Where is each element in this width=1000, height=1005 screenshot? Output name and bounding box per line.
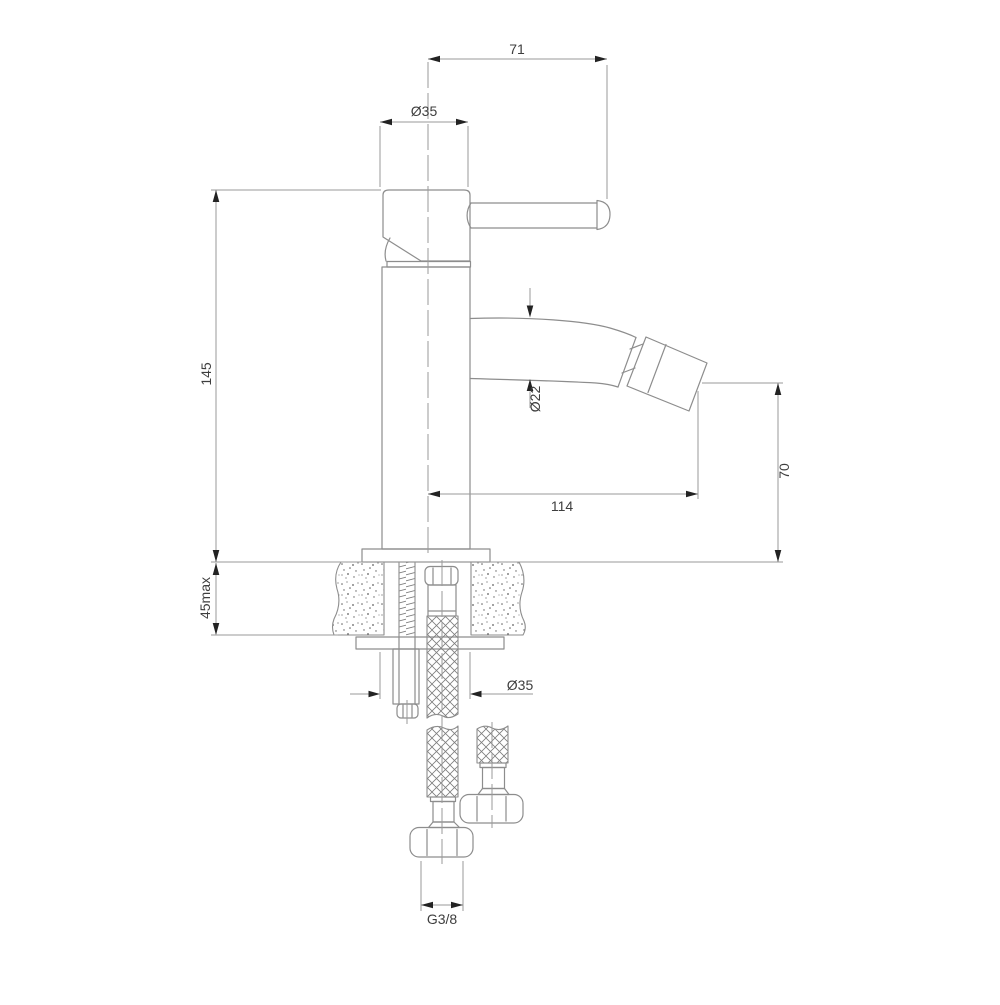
threaded-rod	[399, 562, 415, 637]
dim-deck-thickness-label: 45max	[197, 577, 213, 619]
spout-end-face	[618, 338, 636, 388]
hose-tube	[483, 768, 505, 789]
arrowhead	[775, 383, 782, 395]
dimension-head-diameter: Ø35	[380, 103, 468, 187]
spout	[470, 318, 707, 411]
head-collar-ring	[387, 262, 471, 268]
countertop-left-block	[333, 562, 385, 635]
dim-handle-span-label: 71	[509, 41, 525, 57]
arrowhead	[470, 691, 482, 698]
faucet-handle	[467, 201, 610, 230]
dim-shank-diameter-label: Ø35	[507, 677, 534, 693]
arrowhead	[456, 119, 468, 126]
hose-flare	[478, 789, 509, 795]
technical-drawing-page: 71 Ø35 145 45max Ø22 114	[0, 0, 1000, 1000]
rod-through-plate	[399, 637, 415, 649]
arrowhead	[775, 550, 782, 562]
handle-end-cap	[597, 201, 610, 230]
hose-tube	[433, 802, 454, 823]
arrowhead	[213, 550, 220, 562]
dimension-handle-span: 71	[428, 41, 607, 199]
arrowhead	[213, 563, 220, 575]
spout-top-edge	[470, 318, 636, 337]
aerator-outline	[627, 337, 707, 411]
extension-line	[380, 126, 468, 187]
hose-flare	[429, 822, 460, 828]
arrowhead	[527, 306, 534, 318]
arrowhead	[421, 902, 433, 909]
base-flange	[362, 549, 490, 562]
dim-connection-thread-label: G3/8	[427, 911, 458, 927]
hose-ferrule	[431, 797, 456, 802]
handle-lever	[467, 203, 597, 228]
arrowhead	[380, 119, 392, 126]
dim-body-height-label: 145	[198, 362, 214, 386]
faucet-head	[383, 190, 471, 267]
dim-outlet-height-label: 70	[776, 463, 792, 479]
faucet-technical-drawing: 71 Ø35 145 45max Ø22 114	[0, 0, 1000, 1000]
dimension-spout-diameter: Ø22	[527, 288, 543, 412]
arrowhead	[428, 56, 440, 63]
dimension-body-height: 145	[198, 190, 381, 562]
arrowhead	[686, 491, 698, 498]
arrowhead	[369, 691, 381, 698]
arrowhead	[428, 491, 440, 498]
faucet-body-column	[382, 267, 470, 549]
dimension-connection-thread: G3/8	[421, 861, 463, 927]
arrowhead	[213, 623, 220, 635]
spout-bottom-edge	[470, 379, 618, 388]
countertop-right-block	[471, 562, 525, 635]
arrowhead	[595, 56, 607, 63]
dimension-deck-thickness: 45max	[197, 563, 338, 635]
dimension-outlet-height: 70	[702, 383, 792, 562]
dimension-spout-reach: 114	[428, 391, 698, 514]
arrowhead	[451, 902, 463, 909]
hose-ferrule	[480, 763, 506, 768]
arrowhead	[213, 190, 220, 202]
aerator	[627, 337, 707, 411]
head-outline	[383, 190, 470, 261]
dim-spout-reach-label: 114	[551, 498, 574, 514]
dim-spout-diameter-label: Ø22	[527, 386, 543, 413]
rod-sleeve-inner-lines	[399, 649, 415, 704]
aerator-partition-line	[648, 345, 666, 393]
dim-head-diameter-label: Ø35	[411, 103, 438, 119]
